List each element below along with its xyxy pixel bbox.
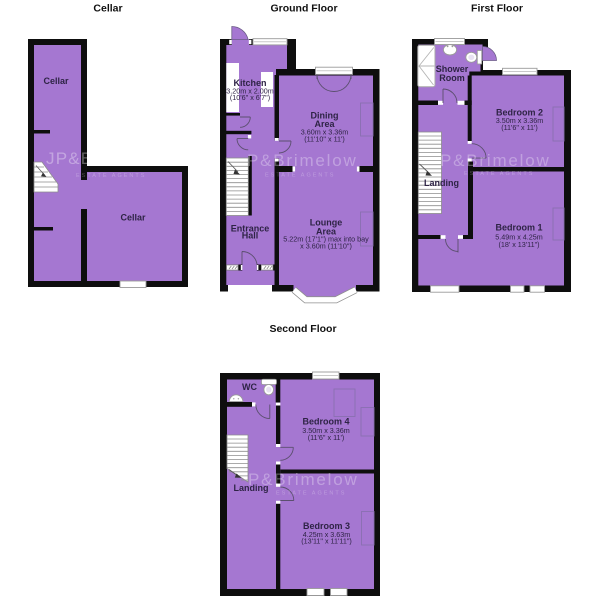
svg-text:Cellar: Cellar xyxy=(43,76,69,86)
svg-text:Landing: Landing xyxy=(424,178,459,188)
svg-text:Hall: Hall xyxy=(242,230,259,240)
svg-text:(13'11" x 11'11"): (13'11" x 11'11") xyxy=(301,536,352,545)
svg-text:Cellar: Cellar xyxy=(93,3,122,15)
svg-text:ESTATE AGENTS: ESTATE AGENTS xyxy=(265,173,335,179)
svg-text:P&Brimelow: P&Brimelow xyxy=(440,151,551,170)
svg-text:JP&Brimelow: JP&Brimelow xyxy=(46,149,160,168)
svg-text:(11'10" x 11'): (11'10" x 11') xyxy=(304,135,345,144)
svg-text:x 3.60m (11'10"): x 3.60m (11'10") xyxy=(300,242,352,251)
svg-text:ESTATE AGENTS: ESTATE AGENTS xyxy=(276,491,346,497)
svg-text:ESTATE AGENTS: ESTATE AGENTS xyxy=(464,171,534,177)
svg-text:P&Brimelow: P&Brimelow xyxy=(247,151,358,170)
svg-text:WC: WC xyxy=(242,382,257,392)
svg-text:Bedroom 4: Bedroom 4 xyxy=(302,417,349,427)
svg-text:First Floor: First Floor xyxy=(471,3,523,15)
svg-text:Landing: Landing xyxy=(234,483,269,493)
svg-text:ESTATE AGENTS: ESTATE AGENTS xyxy=(76,173,146,179)
svg-text:Bedroom 1: Bedroom 1 xyxy=(495,223,542,233)
svg-text:(18' x 13'11"): (18' x 13'11") xyxy=(498,240,539,249)
svg-text:Room: Room xyxy=(439,73,465,83)
svg-text:Second Floor: Second Floor xyxy=(269,323,336,335)
svg-text:(10'6" x 6'7"): (10'6" x 6'7") xyxy=(230,93,270,102)
svg-text:Ground Floor: Ground Floor xyxy=(270,3,337,15)
svg-text:Cellar: Cellar xyxy=(120,213,146,223)
svg-text:(11'6" x 11'): (11'6" x 11') xyxy=(501,123,538,132)
svg-text:(11'6" x 11'): (11'6" x 11') xyxy=(308,433,345,442)
